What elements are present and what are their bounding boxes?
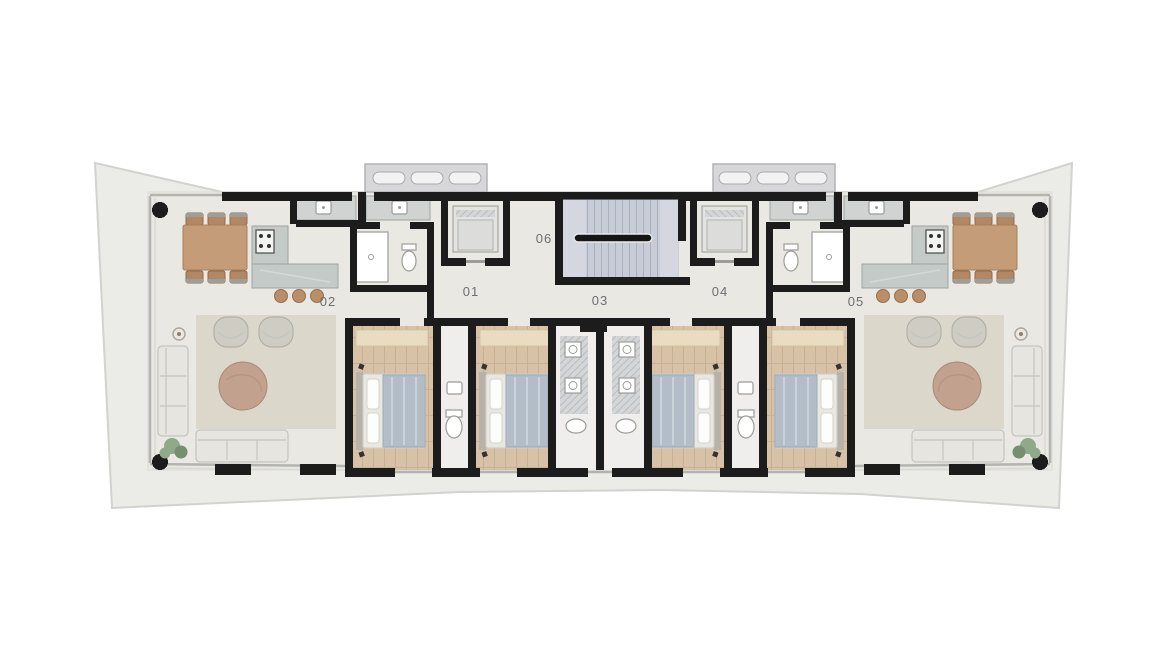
sofa xyxy=(196,430,288,462)
toilet-icon xyxy=(402,251,416,271)
dining-set xyxy=(183,213,247,283)
shower xyxy=(354,232,388,282)
dining-table xyxy=(183,225,247,270)
bedroom-bathroom xyxy=(441,326,468,470)
toilet-icon xyxy=(566,419,586,433)
cooktop-icon xyxy=(256,230,274,253)
vent-grille xyxy=(365,164,487,192)
pillow xyxy=(490,379,502,409)
label-unit-01: 01 xyxy=(463,284,479,299)
label-stairs-06: 06 xyxy=(536,231,552,246)
armchair xyxy=(214,317,248,347)
label-unit-05: 05 xyxy=(848,294,864,309)
label-unit-02: 02 xyxy=(320,294,336,309)
bed xyxy=(356,363,425,457)
handrail xyxy=(574,234,652,242)
round-ottoman xyxy=(219,362,267,410)
bar-stools xyxy=(275,290,324,303)
staircase xyxy=(563,200,678,277)
label-unit-03: 03 xyxy=(592,293,608,308)
bed xyxy=(479,363,548,457)
toilet-icon xyxy=(616,419,636,433)
toilet-icon xyxy=(446,416,462,438)
floor-plan-drawing: 01 02 03 04 05 06 xyxy=(0,0,1164,650)
closet xyxy=(356,330,428,346)
closet xyxy=(480,330,550,346)
label-unit-04: 04 xyxy=(712,284,728,299)
utility-shaft xyxy=(548,318,652,477)
armchair xyxy=(259,317,293,347)
stair-core xyxy=(555,192,690,285)
sofa xyxy=(158,346,188,436)
bedroom-b xyxy=(476,326,556,470)
pillow xyxy=(367,379,379,409)
pillow xyxy=(490,413,502,443)
floor-plan: 01 02 03 04 05 06 xyxy=(0,0,1164,650)
sink-icon xyxy=(447,382,462,394)
bedroom-a xyxy=(353,326,433,470)
pillow xyxy=(367,413,379,443)
structural-column xyxy=(152,202,168,218)
